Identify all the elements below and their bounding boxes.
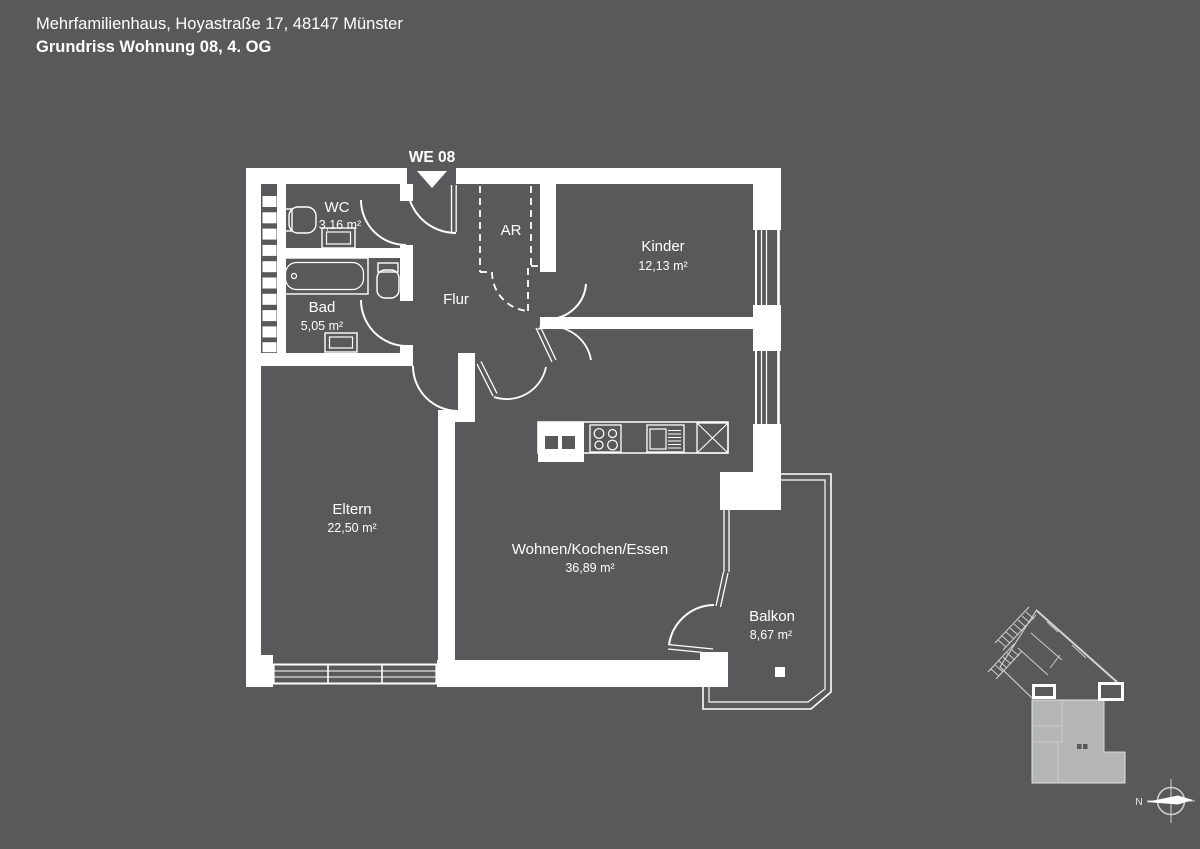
room-area-bad: 5,05 m² xyxy=(301,319,343,333)
wohnen-door-arc-right xyxy=(538,327,591,360)
walls-group xyxy=(246,168,781,687)
room-label-flur: Flur xyxy=(443,291,469,308)
building-minimap xyxy=(988,607,1125,783)
room-area-eltern: 22,50 m² xyxy=(327,521,376,535)
bad-door-arc xyxy=(361,300,407,346)
floor-plan-svg: WE 08 WC 3,16 m² Bad 5,05 m² Flur AR Kin… xyxy=(0,0,1200,849)
room-area-wohnen: 36,89 m² xyxy=(565,561,614,575)
bathtub-icon xyxy=(281,258,368,294)
north-needle-icon xyxy=(1146,796,1193,805)
kitchen-sink-icon xyxy=(538,422,584,462)
balcony-door-arc xyxy=(669,605,714,645)
room-label-eltern: Eltern xyxy=(332,501,371,518)
wohnen-door-arc-left xyxy=(494,367,546,399)
north-label: N xyxy=(1135,797,1142,808)
room-area-kinder: 12,13 m² xyxy=(638,259,687,273)
room-label-wc: WC xyxy=(325,199,350,216)
unit-label: WE 08 xyxy=(409,149,456,166)
room-area-balkon: 8,67 m² xyxy=(750,628,792,642)
balcony-door-jamb xyxy=(716,572,728,607)
room-label-bad: Bad xyxy=(309,299,336,316)
kitchen-fixtures-group xyxy=(538,422,728,462)
kinder-door-arc xyxy=(546,284,586,319)
wohnen-door-leaf-left xyxy=(477,362,497,397)
entrance-door-arc xyxy=(407,184,456,233)
room-label-kinder: Kinder xyxy=(641,238,684,255)
storage-room-dashed-group xyxy=(480,186,540,311)
north-compass: N xyxy=(1135,779,1195,823)
room-area-wc: 3,16 m² xyxy=(319,218,361,232)
entrance-door-leaf xyxy=(452,185,457,232)
room-label-balkon: Balkon xyxy=(749,608,795,625)
balcony-door-frame xyxy=(724,505,729,572)
room-label-wohnen: Wohnen/Kochen/Essen xyxy=(512,541,669,558)
balcony-drain xyxy=(775,667,785,677)
ar-door-arc xyxy=(492,272,528,311)
wc-door-arc xyxy=(361,200,406,245)
wohnen-door-leaf-right xyxy=(536,326,556,362)
eltern-door-arc xyxy=(413,366,458,411)
room-label-ar: AR xyxy=(501,222,522,239)
minimap-current-unit xyxy=(1032,700,1125,783)
wall-hatch-pattern xyxy=(263,196,277,352)
windows-group xyxy=(273,230,779,685)
entrance-marker-icon xyxy=(417,171,447,188)
floorplan-page: Mehrfamilienhaus, Hoyastraße 17, 48147 M… xyxy=(0,0,1200,849)
